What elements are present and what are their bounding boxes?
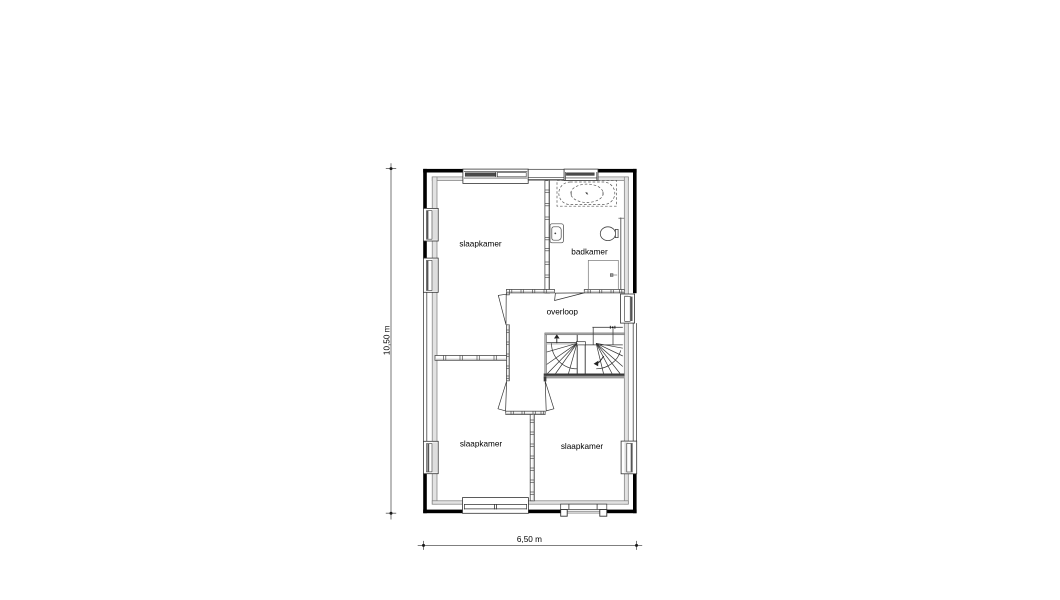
svg-text:overloop: overloop [547,307,579,316]
svg-text:slaapkamer: slaapkamer [459,239,502,248]
svg-text:6,50 m: 6,50 m [517,535,542,544]
svg-text:slaapkamer: slaapkamer [561,442,604,451]
svg-text:10,50 m: 10,50 m [382,325,391,355]
svg-text:badkamer: badkamer [571,247,608,256]
svg-text:slaapkamer: slaapkamer [460,439,503,448]
